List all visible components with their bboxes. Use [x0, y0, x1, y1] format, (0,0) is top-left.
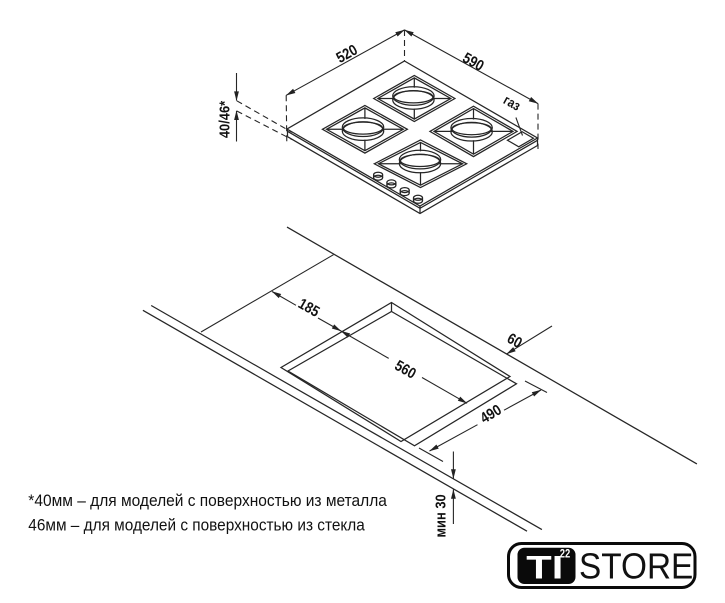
svg-text:46мм – для моделей с поверхнос: 46мм – для моделей с поверхностью из сте… — [28, 516, 365, 535]
svg-text:STORE: STORE — [579, 546, 693, 587]
svg-text:22: 22 — [560, 549, 571, 561]
svg-text:40/46*: 40/46* — [215, 100, 232, 138]
svg-text:TI: TI — [526, 550, 563, 586]
svg-text:*40мм – для моделей с поверхно: *40мм – для моделей с поверхностью из ме… — [28, 491, 387, 510]
svg-text:мин 30: мин 30 — [432, 494, 449, 537]
